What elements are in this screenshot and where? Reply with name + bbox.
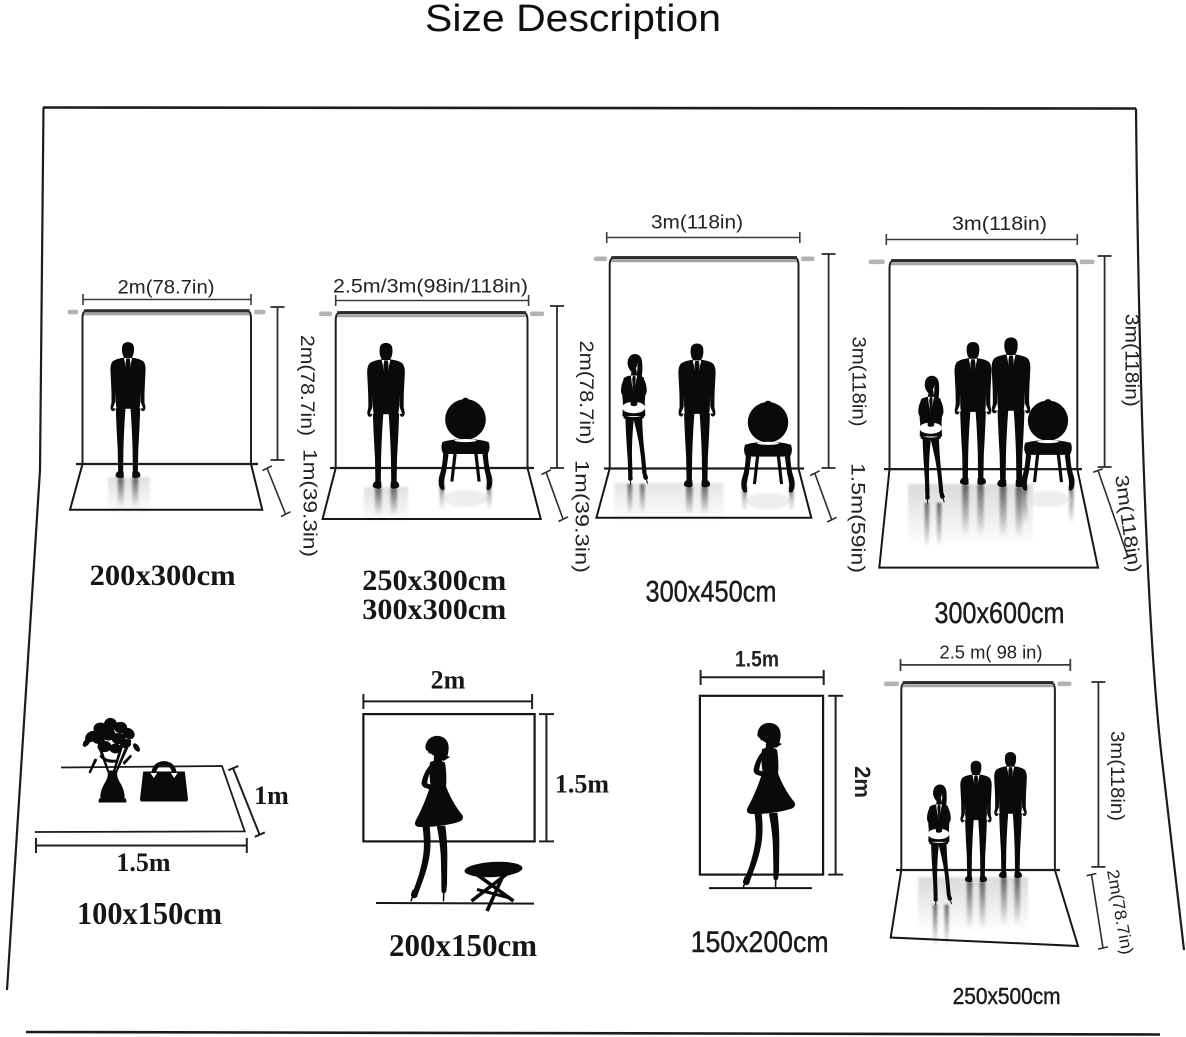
svg-text:2m: 2m: [850, 766, 875, 798]
svg-text:2m(78.7in): 2m(78.7in): [296, 335, 317, 436]
svg-text:3m(118in): 3m(118in): [952, 214, 1047, 235]
svg-text:300x300cm: 300x300cm: [362, 593, 506, 626]
svg-text:3m(118in): 3m(118in): [651, 213, 743, 234]
svg-text:3m(118in): 3m(118in): [848, 337, 869, 427]
svg-text:250x500cm: 250x500cm: [953, 983, 1061, 1009]
svg-text:100x150cm: 100x150cm: [77, 895, 222, 931]
svg-text:1m: 1m: [254, 781, 289, 810]
svg-text:2.5 m( 98 in): 2.5 m( 98 in): [940, 643, 1043, 663]
svg-text:2m(78.7in): 2m(78.7in): [118, 278, 215, 299]
svg-text:2.5m/3m(98in/118in): 2.5m/3m(98in/118in): [333, 277, 528, 298]
svg-text:1.5m: 1.5m: [116, 848, 171, 877]
svg-text:1m(39.3in): 1m(39.3in): [299, 449, 320, 557]
svg-text:Size Description: Size Description: [425, 0, 721, 40]
svg-text:200x150cm: 200x150cm: [389, 927, 537, 963]
svg-text:1.5m: 1.5m: [555, 770, 610, 799]
svg-text:2m: 2m: [431, 666, 466, 695]
svg-text:150x200cm: 150x200cm: [691, 926, 829, 959]
svg-text:1.5m(59in): 1.5m(59in): [847, 463, 868, 573]
svg-text:3m(118in): 3m(118in): [1106, 731, 1127, 821]
svg-text:300x600cm: 300x600cm: [935, 597, 1065, 630]
svg-text:300x450cm: 300x450cm: [646, 576, 777, 609]
svg-text:1.5m: 1.5m: [735, 647, 779, 672]
svg-text:2m(78.7in): 2m(78.7in): [575, 341, 596, 445]
svg-text:1m(39.3in): 1m(39.3in): [571, 460, 592, 573]
svg-text:200x300cm: 200x300cm: [90, 559, 236, 592]
svg-text:3m(118in): 3m(118in): [1121, 314, 1142, 407]
